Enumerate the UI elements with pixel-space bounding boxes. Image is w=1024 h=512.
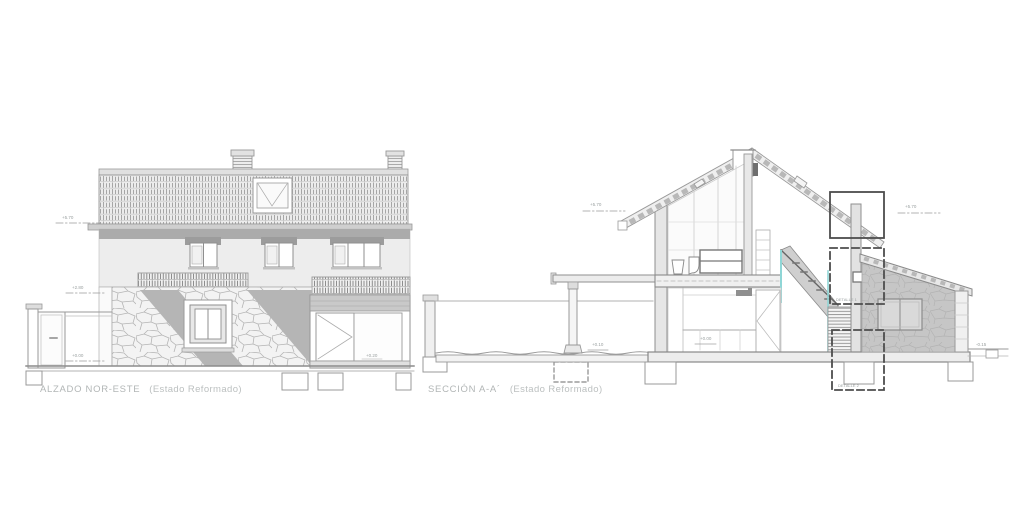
- upper-window-group-left: [185, 237, 221, 270]
- roller-shutter-box: [310, 295, 410, 311]
- drawing-canvas: +0.20 +5.70 +2.80 +0.0: [0, 0, 1024, 512]
- level-marker-porch: +0.10: [592, 342, 604, 347]
- shelf-unit: [700, 250, 742, 273]
- level-marker-ground-floor: +0.00: [700, 336, 712, 341]
- tall-cabinet: [756, 230, 770, 278]
- section-caption: SECCIÓN A-A´(Estado Reformado): [428, 384, 603, 395]
- corner-quoin-strip: [99, 287, 112, 366]
- upper-window-group-middle: [261, 237, 297, 270]
- terrain-line: [436, 352, 652, 355]
- footing-stub: [282, 373, 308, 390]
- roof-front-face: [88, 169, 412, 230]
- annex-leanto: -0.15: [860, 254, 1008, 358]
- gutter: [618, 221, 627, 230]
- washbasin: [672, 260, 684, 274]
- annex-corner-pilaster: [955, 291, 968, 352]
- partition-wall: [744, 154, 752, 278]
- detail-label-lower: DETALLE 2: [838, 383, 860, 388]
- footing-stub: [844, 362, 874, 384]
- wall-junction-detail: [853, 272, 863, 282]
- gate-panel: [38, 312, 65, 368]
- interfloor-slab: [655, 275, 781, 287]
- section-caption-title: SECCIÓN A-A´: [428, 384, 501, 395]
- detail-label-upper: DETALLE 1: [836, 297, 858, 302]
- section-drawing: +0.10: [423, 148, 1008, 390]
- level-marker-left-eave: +5.70: [590, 202, 602, 207]
- footing-stub: [396, 373, 411, 390]
- column-footing-dashed: [554, 362, 588, 382]
- porch-canopy: [551, 273, 655, 284]
- elevation-drawing: +0.20 +5.70 +2.80 +0.0: [26, 150, 414, 390]
- elevation-caption-title: ALZADO NOR-ESTE: [40, 384, 140, 395]
- ground-floor-window: [182, 300, 234, 352]
- level-marker-upper: +2.80: [72, 285, 84, 290]
- elevation-caption-note: (Estado Reformado): [149, 384, 242, 395]
- skylight-window: [253, 178, 292, 213]
- porch-column: [564, 282, 582, 353]
- level-marker-annex: -0.15: [976, 342, 987, 347]
- fixed-glass-pane: [354, 313, 402, 361]
- gate-post: [28, 309, 38, 368]
- elevation-caption: ALZADO NOR-ESTE(Estado Reformado): [40, 384, 242, 395]
- footing-stub: [645, 362, 676, 384]
- footing-stub: [318, 373, 343, 390]
- section-caption-note: (Estado Reformado): [510, 384, 603, 395]
- footing-stub: [948, 362, 973, 381]
- upper-window-group-right: [330, 237, 384, 270]
- section-ground-slab: [436, 352, 973, 384]
- level-marker-ground: +0.00: [72, 353, 84, 358]
- interior-door: [756, 290, 780, 352]
- pergola-tile-strip-right: [312, 277, 410, 297]
- level-marker-right-eave: +5.70: [905, 204, 917, 209]
- glazed-door-opening: +0.20: [310, 295, 410, 368]
- drawing-sheet: +0.20 +5.70 +2.80 +0.0: [0, 0, 1024, 512]
- ridge-beam: [753, 163, 758, 176]
- ground-floor-interior: +0.00: [668, 288, 781, 352]
- footing-stub: [26, 371, 42, 385]
- level-marker-eave: +5.70: [62, 215, 74, 220]
- level-marker-door: +0.20: [366, 353, 378, 358]
- door-leaf: [316, 313, 354, 361]
- right-grade-edge: -0.15: [968, 342, 1008, 358]
- drain-box: [986, 350, 998, 358]
- section-level-markers: +5.70 +5.70: [583, 202, 940, 213]
